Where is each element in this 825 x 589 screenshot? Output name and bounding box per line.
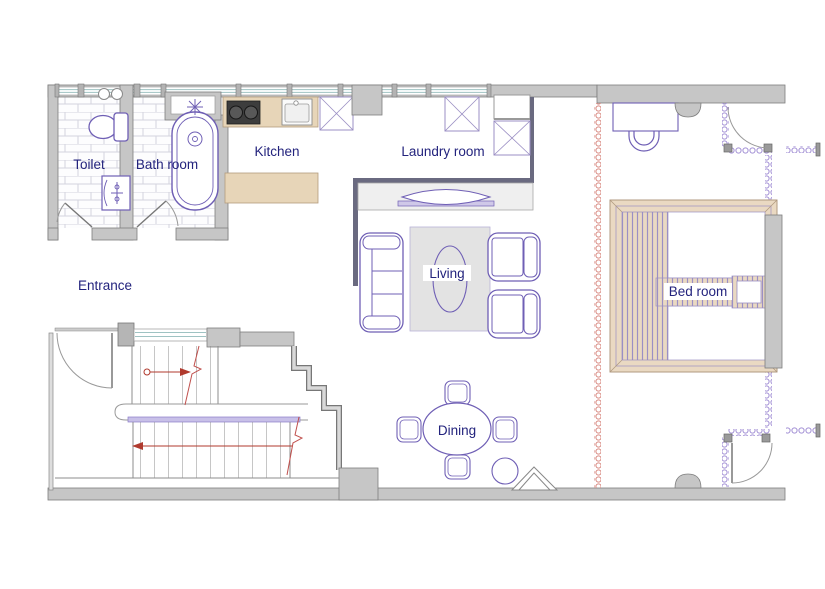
washer	[445, 97, 479, 131]
living-half-wall-left	[353, 183, 358, 286]
entrance-sidelight-window	[134, 329, 207, 341]
stair-landing	[115, 404, 308, 422]
refrigerator	[320, 97, 353, 130]
toilet-label: Toilet	[73, 157, 105, 172]
dining-label: Dining	[438, 423, 476, 438]
dining-area: Dining	[397, 381, 557, 490]
bathroom-label: Bath room	[136, 157, 198, 172]
dining-chair	[493, 417, 517, 442]
closet-door-bottom	[732, 443, 772, 483]
entrance-label: Entrance	[78, 278, 132, 293]
laundry-right-wall	[530, 97, 534, 183]
door-head-rail	[55, 328, 118, 331]
entrance-hall: Entrance	[55, 278, 378, 500]
left-wall-upper	[48, 85, 58, 240]
pet-door	[512, 467, 557, 490]
left-wall-lower	[49, 333, 53, 490]
stairs-upper-flight	[132, 346, 218, 404]
closet-door-top	[728, 107, 770, 148]
kitchen: Kitchen	[223, 97, 353, 203]
living-half-wall-top	[353, 178, 534, 183]
bedside-table	[732, 276, 766, 308]
bedroom-right-wall	[765, 215, 782, 368]
floor-plan: Toilet Bath room	[0, 0, 825, 589]
bath-faucet	[187, 99, 203, 115]
wall-bump-bottom	[675, 474, 701, 488]
entrance-door	[57, 333, 112, 388]
kitchen-sink	[282, 99, 312, 125]
toilet-roll-holder	[112, 89, 123, 100]
bed-mattress	[668, 212, 765, 278]
sofa	[360, 233, 403, 332]
landing-edge-strip	[128, 417, 300, 422]
armchair	[488, 233, 540, 281]
laundry-label: Laundry room	[401, 144, 484, 159]
stool	[492, 458, 518, 484]
toilet-wc	[89, 113, 128, 141]
bedroom-label: Bed room	[669, 284, 728, 299]
dining-chair	[445, 455, 470, 479]
armchair	[488, 290, 540, 338]
laundry-niche	[494, 95, 530, 119]
kitchen-label: Kitchen	[254, 144, 299, 159]
stove	[227, 101, 260, 124]
floor-plan-drawing: Toilet Bath room	[0, 0, 825, 589]
desk	[613, 103, 678, 131]
bed-mattress	[668, 306, 765, 360]
bedroom: Bed room	[594, 103, 820, 488]
desk-chair	[629, 131, 659, 151]
living-label: Living	[429, 266, 464, 281]
stairs-lower-flight	[133, 422, 290, 478]
living-room: Living	[353, 178, 540, 338]
dryer	[494, 121, 530, 155]
entrance-pillar	[118, 323, 134, 346]
coil-partition-red	[594, 103, 601, 488]
wall-bump-top	[675, 103, 701, 117]
laundry-room: Laundry room	[352, 85, 534, 183]
dining-chair	[445, 381, 470, 405]
laundry-wall-stub	[352, 85, 382, 115]
top-wall-right	[597, 85, 785, 103]
toilet-bath-divider-wall	[120, 85, 133, 240]
wash-basin	[102, 176, 130, 210]
bottom-wall	[48, 488, 785, 500]
dining-chair	[397, 417, 421, 442]
toilet-roll-holder	[99, 89, 110, 100]
kitchen-island	[225, 173, 318, 203]
